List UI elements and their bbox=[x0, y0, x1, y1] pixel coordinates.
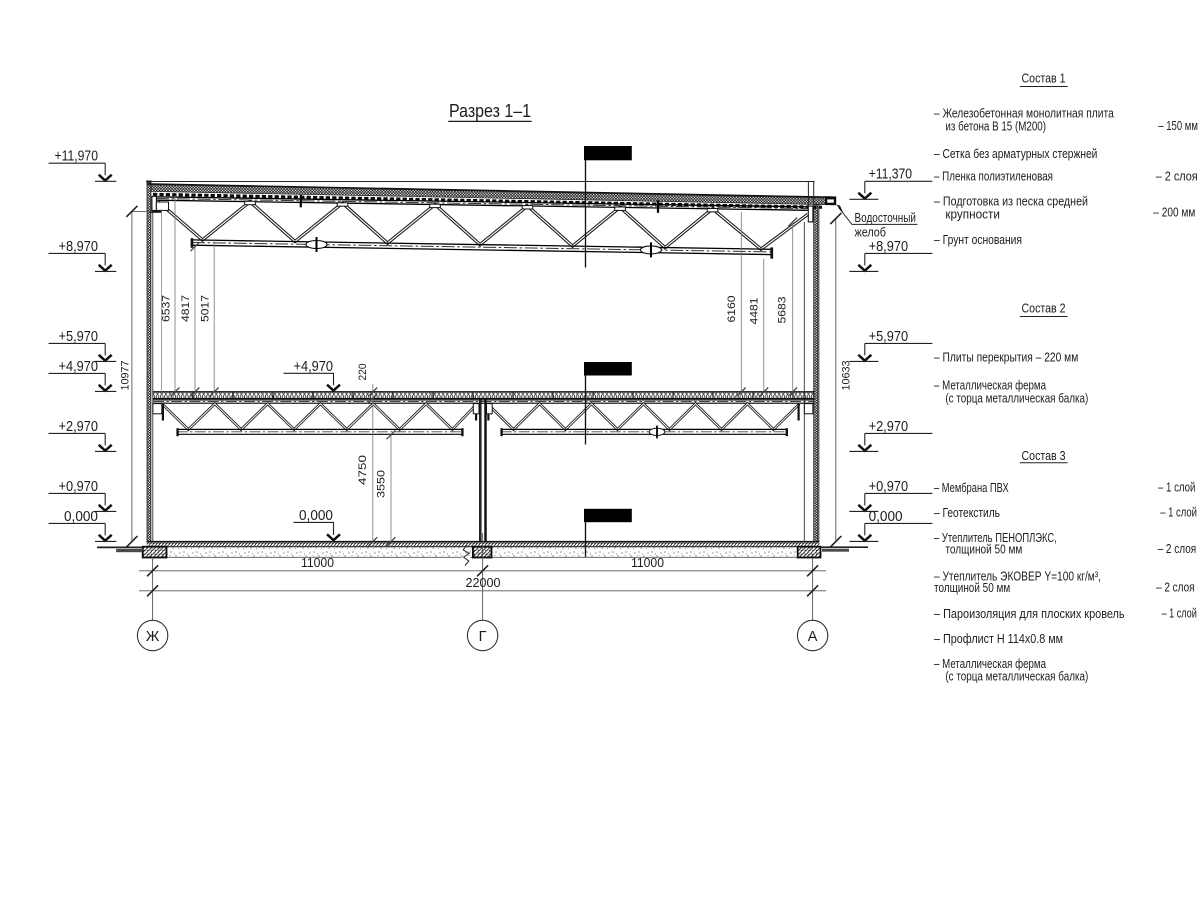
svg-text:+0,970: +0,970 bbox=[869, 479, 909, 495]
svg-text:Водосточный: Водосточный bbox=[855, 210, 917, 225]
svg-text:5683: 5683 bbox=[777, 297, 789, 324]
svg-text:10633: 10633 bbox=[841, 361, 853, 391]
svg-text:А: А bbox=[808, 629, 818, 645]
svg-text:22000: 22000 bbox=[466, 575, 501, 590]
svg-text:+5,970: +5,970 bbox=[59, 329, 99, 345]
svg-text:3550: 3550 bbox=[375, 470, 387, 498]
svg-text:+8,970: +8,970 bbox=[59, 239, 99, 255]
svg-text:желоб: желоб bbox=[855, 224, 887, 239]
svg-text:(с торца металлическая балка): (с торца металлическая балка) bbox=[945, 668, 1088, 683]
svg-text:10977: 10977 bbox=[119, 361, 131, 391]
svg-text:– Грунт основания: – Грунт основания bbox=[934, 232, 1022, 247]
svg-text:+0,970: +0,970 bbox=[59, 479, 99, 495]
svg-text:(с торца металлическая балка): (с торца металлическая балка) bbox=[945, 390, 1088, 405]
svg-text:6160: 6160 bbox=[726, 296, 738, 323]
svg-text:Г: Г bbox=[479, 629, 487, 645]
svg-text:220: 220 bbox=[357, 364, 369, 381]
svg-text:крупности: крупности bbox=[945, 207, 1000, 222]
svg-text:11000: 11000 bbox=[631, 555, 664, 570]
svg-text:4481: 4481 bbox=[748, 298, 760, 325]
svg-text:– Профлист Н 114х0.8 мм: – Профлист Н 114х0.8 мм bbox=[934, 631, 1063, 646]
svg-text:+4,970: +4,970 bbox=[294, 359, 334, 375]
svg-text:– Сетка без арматурных стержне: – Сетка без арматурных стержней bbox=[934, 146, 1097, 161]
svg-text:– 200 мм: – 200 мм bbox=[1153, 205, 1195, 220]
svg-text:Ж: Ж bbox=[146, 629, 160, 645]
svg-text:– 2 слоя: – 2 слоя bbox=[1156, 169, 1198, 184]
svg-text:толщиной 50 мм: толщиной 50 мм bbox=[934, 580, 1010, 595]
svg-text:– Пленка полиэтиленовая: – Пленка полиэтиленовая bbox=[934, 169, 1053, 184]
svg-text:Состав 2: Состав 2 bbox=[1022, 301, 1066, 316]
svg-text:– 2 слоя: – 2 слоя bbox=[1156, 580, 1195, 595]
svg-text:4817: 4817 bbox=[180, 295, 192, 322]
svg-text:из бетона В 15 (М200): из бетона В 15 (М200) bbox=[945, 119, 1046, 134]
svg-text:Состав 3: Состав 3 bbox=[1022, 448, 1066, 463]
svg-text:– 150 мм: – 150 мм bbox=[1158, 118, 1198, 133]
svg-text:– 2 слоя: – 2 слоя bbox=[1158, 541, 1197, 556]
svg-text:+11,970: +11,970 bbox=[55, 149, 99, 165]
svg-text:+4,970: +4,970 bbox=[59, 359, 99, 375]
svg-text:5017: 5017 bbox=[200, 295, 212, 322]
svg-text:+11,370: +11,370 bbox=[869, 167, 913, 183]
svg-text:0,000: 0,000 bbox=[299, 508, 333, 524]
svg-text:Состав 1: Состав 1 bbox=[1022, 71, 1066, 86]
svg-text:+8,970: +8,970 bbox=[869, 239, 909, 255]
svg-text:6537: 6537 bbox=[160, 295, 172, 322]
svg-text:– Пароизоляция для плоских кро: – Пароизоляция для плоских кровель bbox=[934, 606, 1125, 621]
svg-text:– 1 слой: – 1 слой bbox=[1162, 606, 1197, 621]
svg-text:– 1 слой: – 1 слой bbox=[1158, 480, 1195, 495]
svg-text:+5,970: +5,970 bbox=[869, 329, 909, 345]
svg-text:– Мембрана ПВХ: – Мембрана ПВХ bbox=[934, 480, 1009, 495]
svg-text:+2,970: +2,970 bbox=[59, 419, 99, 435]
svg-text:4750: 4750 bbox=[357, 455, 369, 485]
svg-text:0,000: 0,000 bbox=[869, 509, 903, 525]
svg-text:0,000: 0,000 bbox=[64, 509, 98, 525]
svg-text:– Геотекстиль: – Геотекстиль bbox=[934, 505, 1000, 520]
svg-text:– Плиты перекрытия – 220 мм: – Плиты перекрытия – 220 мм bbox=[934, 350, 1078, 365]
svg-text:толщиной 50 мм: толщиной 50 мм bbox=[945, 542, 1022, 557]
svg-text:11000: 11000 bbox=[301, 555, 334, 570]
svg-text:Разрез 1–1: Разрез 1–1 bbox=[449, 101, 531, 121]
svg-text:– 1 слой: – 1 слой bbox=[1160, 505, 1197, 520]
svg-text:+2,970: +2,970 bbox=[869, 419, 909, 435]
